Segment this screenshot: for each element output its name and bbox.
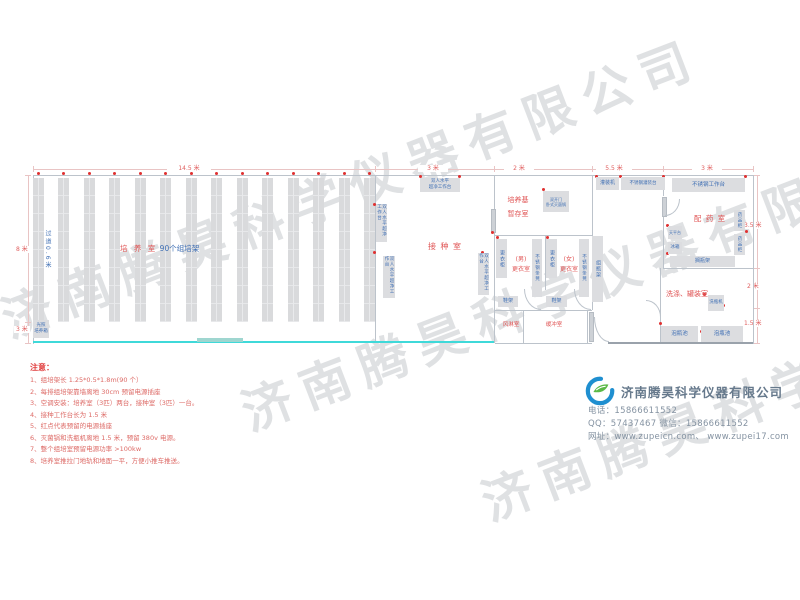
outlet-dot (659, 322, 662, 325)
notes-section: 注意： 1、组培架长 1.25*0.5*1.8m(90 个） 2、每排组培架靠墙… (30, 362, 330, 467)
outlet-dot (491, 231, 494, 234)
wall-inoculation-right (494, 175, 495, 343)
clean-bench-top: 双人水平 超净工作台 (420, 178, 460, 192)
soak-pool-label: 泡瓶池 (671, 331, 688, 338)
note-item: 5、红点代表预留的电源插座 (30, 421, 330, 433)
door-arc (594, 317, 609, 342)
steel-bench-box-1: 不锈钢条凳 (532, 239, 542, 297)
rack-bar (262, 178, 273, 322)
dim-label-top-4: 5.5 米 (596, 165, 632, 172)
medicine-cabinet-box-1: 药品柜 (734, 210, 745, 231)
work-table-label: 不锈钢工作台 (692, 182, 725, 189)
dim-tick (753, 166, 754, 172)
clean-bench-right: 双人水平超净工作台 (478, 253, 489, 295)
medicine-cabinet-label: 药品柜 (737, 236, 742, 253)
aisle-label: 过道0.6米 (43, 230, 52, 294)
dim-label-left-1: 8 米 (14, 246, 30, 253)
outlet-dot (241, 172, 244, 175)
filling-table-box: 不锈钢灌装台 (621, 177, 665, 190)
buffer-room-label: 缓冲室 (541, 320, 567, 328)
notes-title: 注意： (30, 362, 330, 373)
culture-room-name: 培 养 室 (120, 244, 157, 253)
wall-bottom-mid (495, 343, 592, 344)
shoe-rack-label: 鞋架 (551, 298, 561, 304)
dim-tick (754, 268, 760, 269)
dispensing-room-label: 配 药 室 (688, 213, 732, 224)
note-item: 2、每排组培架靠墙离地 30cm 预留电源插座 (30, 387, 330, 399)
wall-airshower-top (494, 310, 592, 311)
filling-machine-box: 灌装机 (596, 177, 619, 190)
company-qq-wechat: QQ：57437467 微信：15866611552 (588, 417, 749, 429)
soak-pool-label: 泡瓶池 (714, 331, 731, 338)
culture-room-label: 培 养 室 90个组培架 (120, 243, 199, 254)
bottle-washer-label: 洗瓶机 (709, 300, 723, 306)
dim-label-top-5: 3 米 (692, 165, 722, 172)
dim-tick (25, 343, 31, 344)
dim-tick (33, 166, 34, 172)
rack-bar (288, 178, 299, 322)
fridge-box: 冰箱 (668, 242, 682, 254)
outlet-dot (343, 172, 346, 175)
bottle-shelf-box: 搁瓶架 (670, 256, 735, 267)
work-table-box: 不锈钢工作台 (672, 178, 745, 192)
outlet-dot (139, 172, 142, 175)
shoe-rack-box-2: 鞋架 (546, 296, 567, 307)
sliding-door (197, 338, 243, 342)
wall-dispensing-bottom (663, 268, 753, 269)
autoclave-box: 双开门 卧式灭菌锅 (543, 191, 569, 212)
wall-buffer-right (587, 310, 588, 343)
air-shower-label: 风淋室 (498, 320, 524, 328)
wall-right (753, 175, 754, 344)
clean-bench-label: 双人水平 超净工作台 (429, 179, 452, 190)
wall-top (33, 175, 753, 176)
dim-tick (25, 175, 31, 176)
dim-line-left (28, 175, 29, 344)
outlet-dot (368, 172, 371, 175)
rack-bar (211, 178, 222, 322)
dim-tick (663, 166, 664, 172)
dim-label-top-1: 14.5 米 (167, 165, 211, 172)
shoe-rack-box-1: 鞋架 (498, 296, 518, 307)
clean-bench-left-1: 双人水平超净工作台 (376, 204, 387, 242)
rack-bar (237, 178, 248, 322)
outlet-dot (266, 172, 269, 175)
rack-bar (313, 178, 324, 322)
steel-bench-label: 不锈钢条凳 (535, 254, 540, 282)
dim-line-right (757, 175, 758, 344)
outlet-dot (373, 251, 376, 254)
inoculation-room-label: 接 种 室 (420, 241, 470, 252)
note-item: 7、整个组培室预留电源功率 >100kw (30, 444, 330, 456)
door-arc (665, 199, 680, 216)
bottle-rack-box: 组瓶架 (592, 236, 603, 302)
soak-pool-box-2: 泡瓶池 (701, 326, 743, 342)
outlet-dot (62, 172, 65, 175)
steel-bench-box-2: 不锈钢条凳 (579, 239, 589, 297)
rack-bar (339, 178, 350, 322)
watermark: 济南腾昊科学仪器有限公司 (470, 201, 800, 535)
fridge-label: 冰箱 (671, 245, 680, 251)
company-phone: 电话：15866611552 (588, 404, 677, 416)
rack-bar (58, 178, 69, 322)
company-logo (585, 376, 615, 406)
company-name: 济南腾昊科学仪器有限公司 (621, 382, 783, 401)
bottle-shelf-label: 搁瓶架 (695, 258, 710, 264)
steel-bench-label: 不锈钢条凳 (582, 254, 587, 282)
dim-line-top (33, 169, 753, 170)
culture-rack-count: 90个组培架 (160, 244, 200, 253)
floor-plan-page: 济南腾昊科学仪器有限公司 济南腾昊科学仪器有限公司 济南腾昊科学仪器有限公司 1… (0, 0, 800, 600)
dim-tick (592, 166, 593, 172)
outlet-dot (317, 172, 320, 175)
dim-tick (494, 166, 495, 172)
filling-machine-label: 灌装机 (600, 180, 615, 186)
dim-label-left-2: 3 米 (14, 326, 30, 333)
dim-label-top-3: 2 米 (504, 165, 534, 172)
rack-bar (364, 178, 375, 322)
wall-bottom-right (608, 342, 753, 344)
dim-tick (375, 166, 376, 172)
balance-box: 天平台 (668, 226, 682, 239)
company-website: 网址：www.zupeicn.com、 www.zupei17.com (588, 430, 789, 442)
note-item: 6、灭菌锅和洗瓶机离地 1.5 米，预留 380v 电源。 (30, 433, 330, 445)
dim-tick (25, 322, 31, 323)
medicine-cabinet-label: 药品柜 (737, 212, 742, 229)
note-item: 1、组培架长 1.25*0.5*1.8m(90 个） (30, 375, 330, 387)
note-item: 8、培养室推拉门地轨和地面一平，方便小推车推送。 (30, 456, 330, 468)
autoclave-label: 双开门 卧式灭菌锅 (546, 197, 566, 207)
dim-tick (754, 175, 760, 176)
outlet-dot (37, 172, 40, 175)
outlet-dot (292, 172, 295, 175)
clean-bench-label: 双人水平超净工作台 (384, 256, 394, 298)
medicine-cabinet-box-2: 药品柜 (734, 234, 745, 255)
outlet-dot (215, 172, 218, 175)
shoe-rack-label: 鞋架 (503, 298, 513, 304)
clean-bench-label: 双人水平超净工作台 (479, 253, 489, 295)
wall-bottom-cyan (33, 341, 494, 343)
outlet-dot (88, 172, 91, 175)
outlet-dot (745, 230, 748, 233)
clean-bench-left-2: 双人水平超净工作台 (383, 256, 395, 298)
door-arc (646, 300, 661, 317)
outlet-dot (190, 172, 193, 175)
incubator-box: 光照 培养箱 (33, 320, 49, 338)
company-logo-icon (585, 376, 615, 406)
incubator-label: 光照 培养箱 (34, 323, 48, 334)
wall-dispensing-left-b (663, 216, 664, 268)
outlet-dot (164, 172, 167, 175)
rack-bar (109, 178, 120, 322)
wall-medium-bottom (494, 235, 592, 236)
medium-room-label: 培养基 暂存室 (496, 193, 540, 221)
dim-label-top-2: 3 米 (418, 165, 448, 172)
balance-label: 天平台 (669, 230, 681, 235)
wall-inoculation-left (375, 175, 376, 343)
rack-bar (84, 178, 95, 322)
bottle-washer-box: 洗瓶机 (708, 295, 724, 311)
clean-bench-label: 双人水平超净工作台 (377, 204, 387, 242)
soak-pool-box-1: 泡瓶池 (661, 326, 698, 342)
dim-tick (754, 343, 760, 344)
outlet-dot (113, 172, 116, 175)
filling-table-label: 不锈钢灌装台 (630, 181, 657, 187)
note-item: 3、空调安装：培养室（3匹）两台，接种室（3匹）一台。 (30, 398, 330, 410)
note-item: 4、接种工作台长为 1.5 米 (30, 410, 330, 422)
dim-tick (754, 308, 760, 309)
bottle-rack-label: 组瓶架 (595, 260, 600, 278)
